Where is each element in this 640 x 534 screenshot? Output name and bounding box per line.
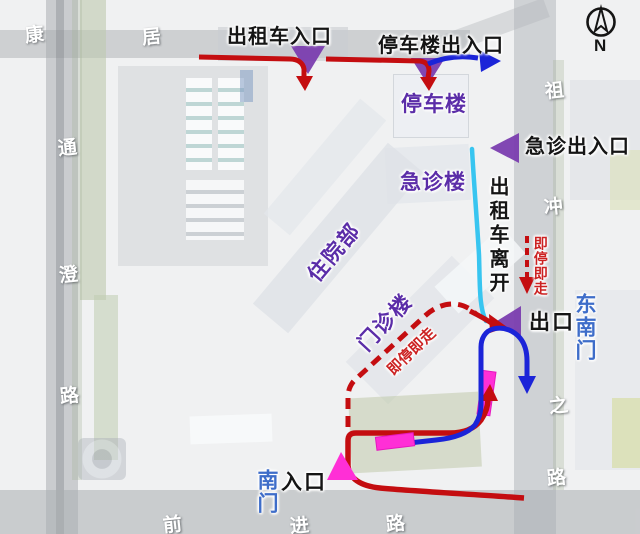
road-char-cheng: 澄: [58, 265, 79, 287]
road-char-zhi: 之: [548, 396, 569, 418]
emergency-building-label: 急诊楼: [400, 172, 466, 194]
southeast-gate-label: 东南门: [573, 293, 595, 362]
exit-label: 出口: [529, 312, 575, 334]
road-char-ju: 居: [141, 27, 162, 49]
parking-gate-label: 停车楼出入口: [378, 36, 504, 57]
map-image: 出租车入口 停车楼出入口 停车楼 急诊出入口 急诊楼 出租车离开 即停即走 住院…: [0, 0, 640, 534]
road-char-chong: 冲: [543, 197, 564, 219]
road-char-jin: 进: [289, 516, 310, 534]
road-char-zu: 祖: [544, 81, 565, 103]
emergency-gate-label: 急诊出入口: [525, 137, 630, 158]
parking-building-label: 停车楼: [401, 94, 467, 116]
stop-and-go-label-right: 即停即走: [533, 236, 548, 296]
south-gate-label: 南门: [255, 469, 277, 515]
road-char-kang: 康: [24, 25, 45, 47]
road-char-tong: 通: [57, 138, 78, 160]
entrance-label: 入口: [281, 472, 327, 494]
road-char-lu-left: 路: [59, 386, 80, 408]
taxi-entrance-label: 出租车入口: [227, 27, 332, 48]
road-char-lu-bottom: 路: [385, 514, 406, 534]
taxi-departure-label: 出租车离开: [486, 176, 507, 296]
compass-n-label: N: [594, 36, 606, 56]
road-char-qian: 前: [162, 515, 183, 534]
road-char-lu-right: 路: [546, 468, 567, 490]
